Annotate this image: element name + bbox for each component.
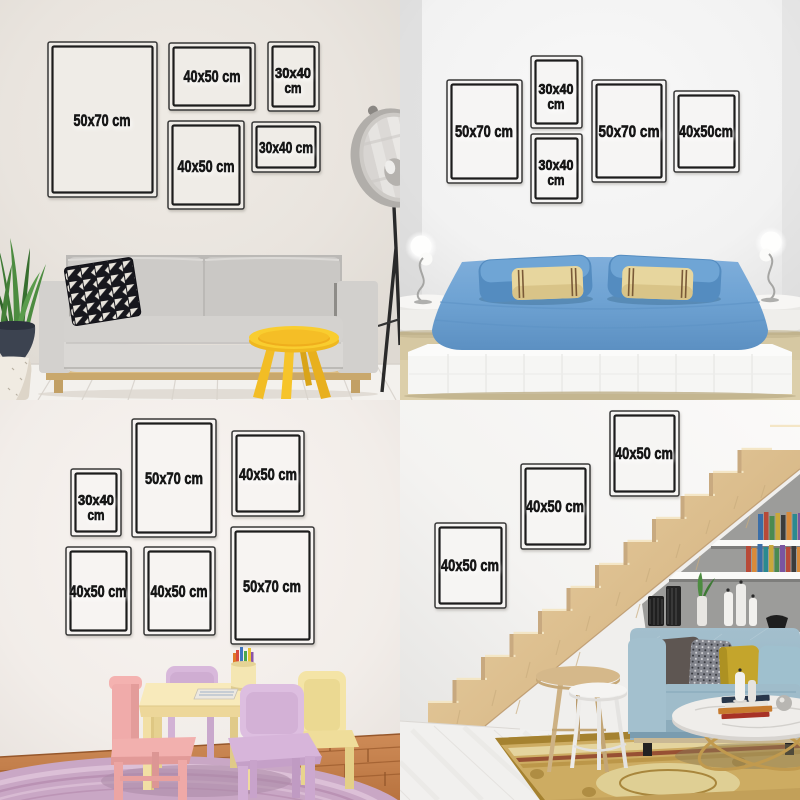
svg-text:40x50 cm: 40x50 cm xyxy=(526,497,584,516)
svg-text:40x50 cm: 40x50 cm xyxy=(184,67,241,86)
svg-text:30x40: 30x40 xyxy=(539,158,574,174)
svg-text:50x70 cm: 50x70 cm xyxy=(145,469,203,488)
svg-text:30x40 cm: 30x40 cm xyxy=(259,140,313,157)
svg-text:30x40: 30x40 xyxy=(78,493,114,509)
svg-text:40x50 cm: 40x50 cm xyxy=(441,556,499,575)
svg-text:50x70 cm: 50x70 cm xyxy=(243,577,301,596)
svg-text:40x50 cm: 40x50 cm xyxy=(615,444,673,463)
svg-text:cm: cm xyxy=(88,508,105,524)
svg-text:50x70 cm: 50x70 cm xyxy=(455,123,513,141)
svg-text:cm: cm xyxy=(548,97,565,113)
svg-text:cm: cm xyxy=(548,173,565,189)
svg-text:40x50 cm: 40x50 cm xyxy=(151,583,208,601)
svg-text:30x40: 30x40 xyxy=(539,82,574,98)
svg-text:cm: cm xyxy=(285,81,302,97)
svg-text:30x40: 30x40 xyxy=(275,66,311,82)
svg-text:40x50 cm: 40x50 cm xyxy=(239,465,297,484)
svg-text:40x50cm: 40x50cm xyxy=(679,123,733,141)
svg-text:50x70 cm: 50x70 cm xyxy=(74,111,131,130)
svg-text:40x50 cm: 40x50 cm xyxy=(70,583,127,601)
svg-text:40x50 cm: 40x50 cm xyxy=(178,157,235,176)
svg-text:50x70 cm: 50x70 cm xyxy=(599,122,660,141)
